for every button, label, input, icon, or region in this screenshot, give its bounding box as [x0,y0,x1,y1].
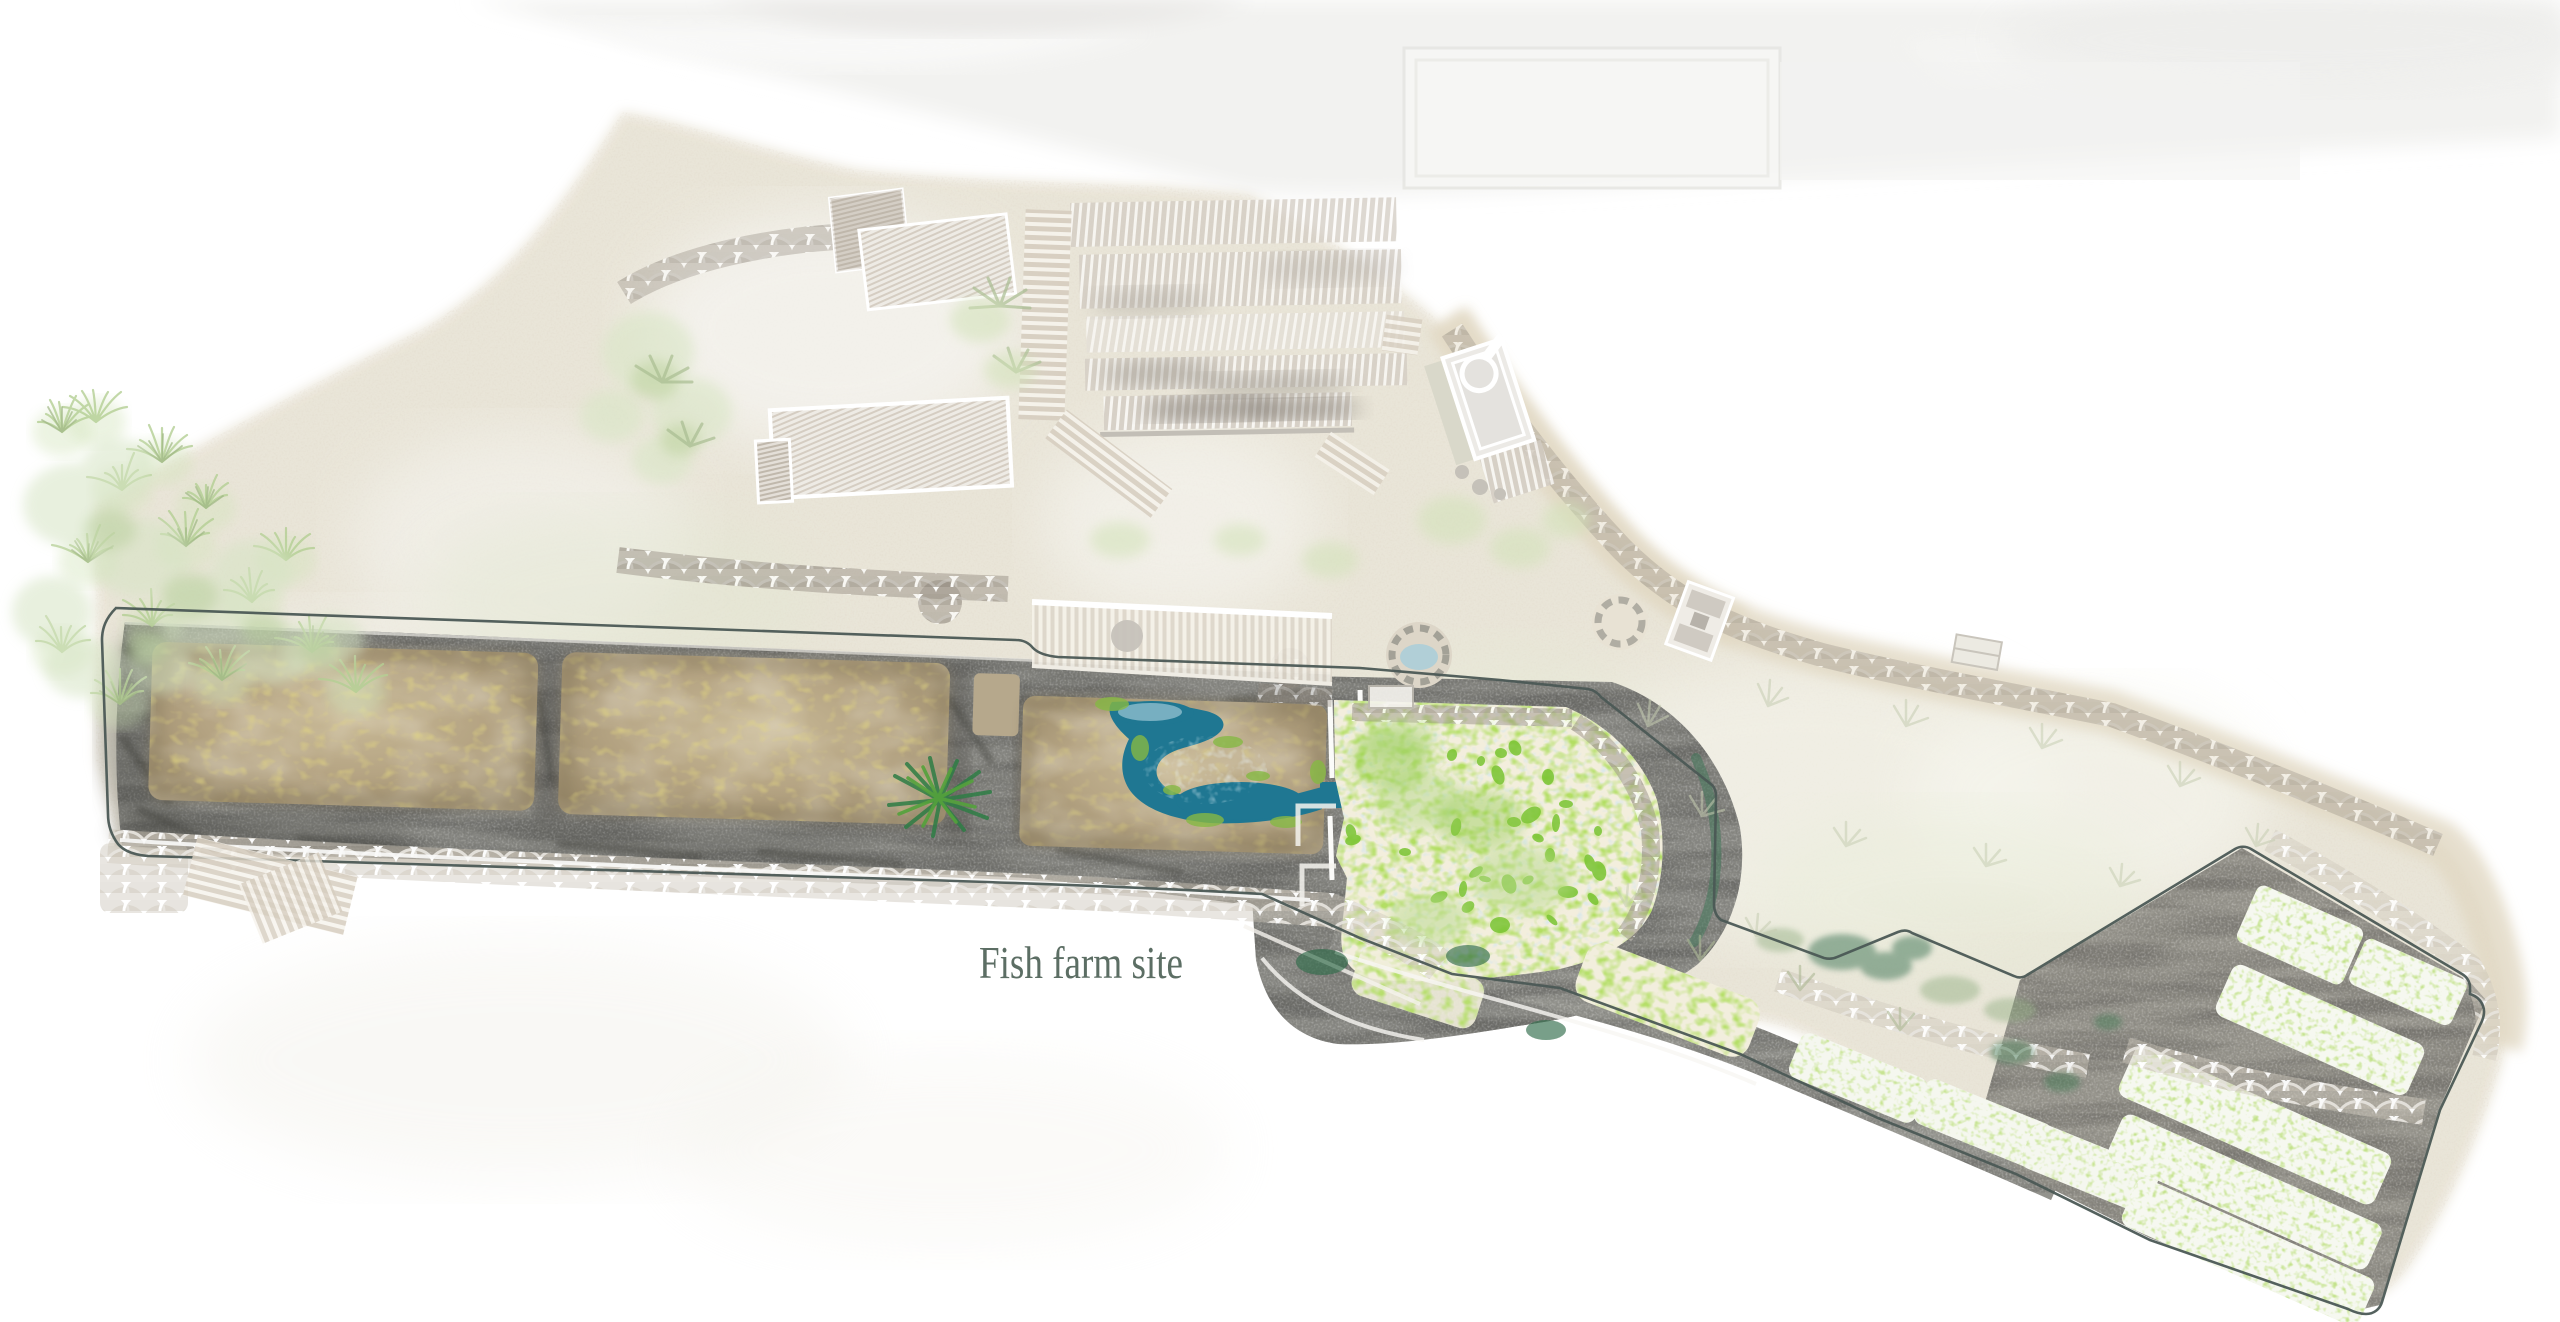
svg-text:Fish farm site: Fish farm site [979,937,1183,988]
